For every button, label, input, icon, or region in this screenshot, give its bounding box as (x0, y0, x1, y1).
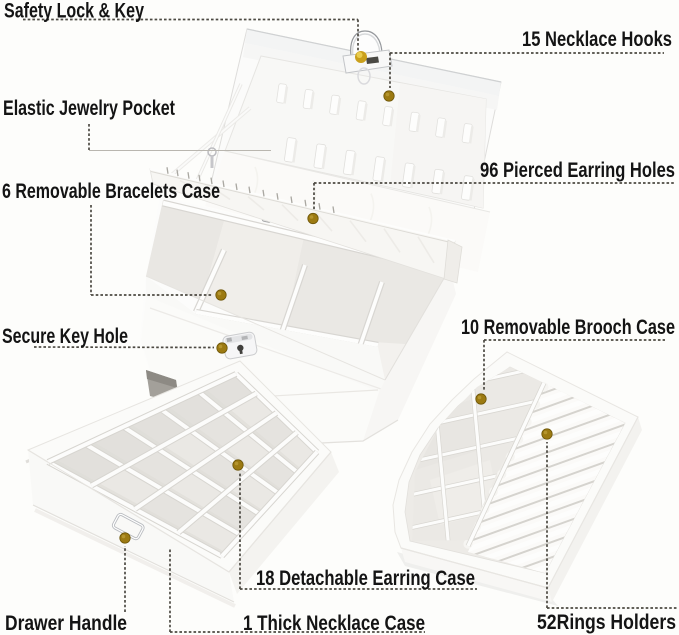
svg-text:52Rings Holders: 52Rings Holders (537, 611, 676, 634)
svg-text:10 Removable Brooch Case: 10 Removable Brooch Case (461, 316, 675, 339)
svg-text:6 Removable Bracelets Case: 6 Removable Bracelets Case (2, 180, 220, 203)
svg-text:15 Necklace Hooks: 15 Necklace Hooks (522, 28, 672, 51)
svg-text:Drawer Handle: Drawer Handle (5, 612, 127, 635)
svg-text:1 Thick Necklace Case: 1 Thick Necklace Case (243, 612, 425, 635)
svg-text:18 Detachable Earring Case: 18 Detachable Earring Case (256, 567, 475, 590)
svg-text:96 Pierced Earring Holes: 96 Pierced Earring Holes (480, 159, 675, 182)
svg-text:Elastic Jewelry Pocket: Elastic Jewelry Pocket (3, 97, 175, 120)
svg-text:Safety Lock & Key: Safety Lock & Key (4, 0, 144, 23)
svg-text:Secure Key Hole: Secure Key Hole (2, 325, 128, 348)
